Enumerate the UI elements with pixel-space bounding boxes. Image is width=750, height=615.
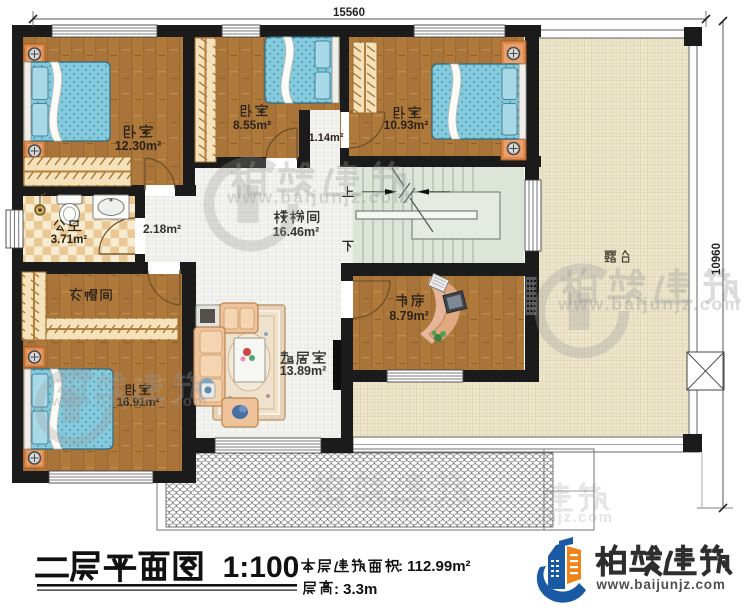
svg-text:www.baijunjz.com: www.baijunjz.com	[307, 494, 473, 511]
svg-text:12.30m²: 12.30m²	[115, 139, 162, 153]
svg-text:: 112.99m²: : 112.99m²	[398, 558, 471, 575]
svg-text:10960: 10960	[711, 243, 723, 275]
svg-text:www.baijunjz.com: www.baijunjz.com	[557, 294, 742, 314]
svg-text:13.89m²: 13.89m²	[280, 364, 327, 378]
svg-text:2.18m²: 2.18m²	[143, 222, 181, 236]
svg-text:8.55m²: 8.55m²	[233, 118, 271, 132]
svg-text:15560: 15560	[333, 7, 365, 19]
svg-text:8.79m²: 8.79m²	[389, 309, 429, 323]
svg-text:1:100: 1:100	[223, 551, 300, 584]
svg-text:www.baijunjz.com: www.baijunjz.com	[595, 577, 725, 592]
svg-text:1.14m²: 1.14m²	[309, 132, 344, 144]
svg-text:www.baijunjz.com: www.baijunjz.com	[50, 394, 208, 410]
svg-text:unjz.com: unjz.com	[536, 509, 613, 526]
svg-text:www.baijunjz.com: www.baijunjz.com	[226, 187, 411, 207]
svg-text:: 3.3m: : 3.3m	[334, 581, 377, 598]
svg-text:10.93m²: 10.93m²	[384, 118, 429, 132]
svg-text:3.71m²: 3.71m²	[51, 234, 88, 246]
